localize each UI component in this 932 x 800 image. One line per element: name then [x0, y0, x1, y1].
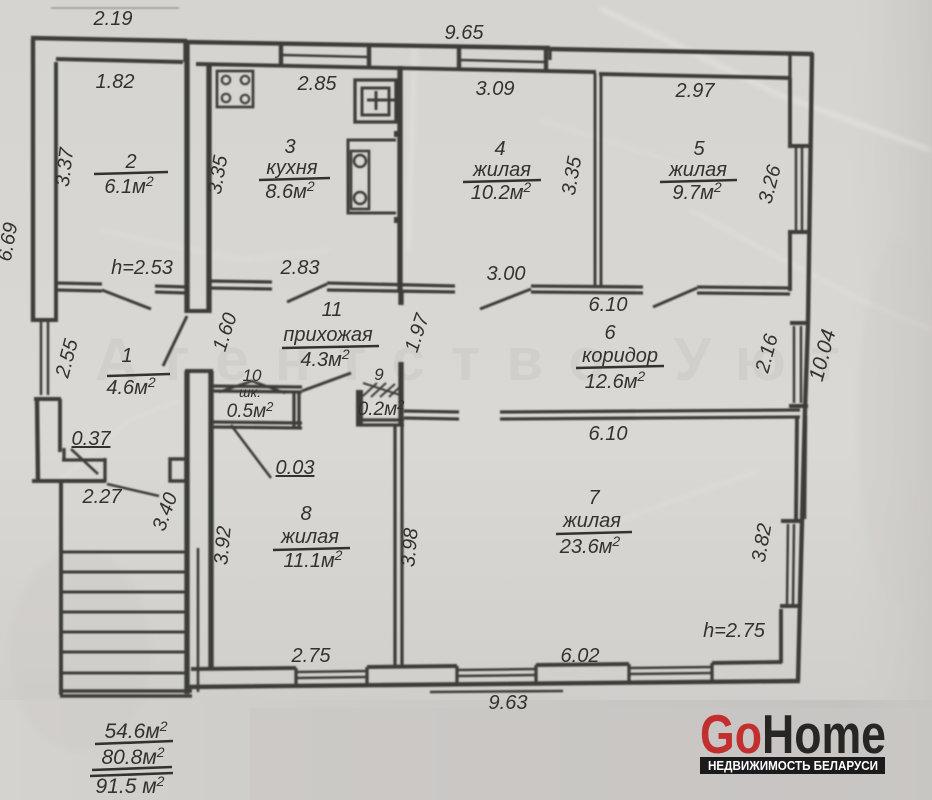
- svg-text:2.83: 2.83: [280, 257, 320, 279]
- svg-text:прихожая: прихожая: [283, 324, 373, 346]
- svg-text:2.19: 2.19: [93, 8, 133, 30]
- svg-text:2.27: 2.27: [82, 486, 123, 508]
- svg-text:6.10: 6.10: [589, 294, 628, 316]
- svg-text:10.2м2: 10.2м2: [471, 179, 532, 204]
- svg-text:GoHome: GoHome: [700, 703, 886, 765]
- svg-text:2.85: 2.85: [297, 73, 338, 95]
- svg-text:h=2.75: h=2.75: [703, 620, 766, 642]
- svg-text:54.6м2: 54.6м2: [104, 718, 167, 743]
- svg-text:кухня: кухня: [266, 157, 317, 179]
- svg-text:9.65: 9.65: [445, 22, 485, 44]
- svg-text:3.92: 3.92: [210, 525, 235, 566]
- svg-text:жилая: жилая: [280, 526, 339, 548]
- svg-text:2.97: 2.97: [675, 80, 716, 102]
- svg-text:коридор: коридор: [582, 345, 658, 367]
- svg-text:8: 8: [300, 503, 311, 525]
- svg-text:0.37: 0.37: [72, 428, 112, 450]
- svg-text:6.02: 6.02: [561, 645, 600, 667]
- svg-text:3.09: 3.09: [476, 78, 515, 100]
- svg-text:6: 6: [604, 322, 616, 344]
- svg-text:11: 11: [322, 299, 343, 321]
- svg-text:3.00: 3.00: [487, 263, 526, 285]
- svg-text:шк.: шк.: [239, 384, 261, 400]
- svg-text:1.82: 1.82: [96, 71, 135, 93]
- svg-text:2.75: 2.75: [291, 645, 332, 667]
- svg-text:6.10: 6.10: [589, 423, 628, 445]
- svg-text:91.5 м2: 91.5 м2: [96, 773, 165, 798]
- svg-text:0.03: 0.03: [276, 457, 315, 479]
- svg-text:80.8м2: 80.8м2: [101, 744, 164, 769]
- svg-text:НЕДВИЖИМОСТЬ БЕЛАРУСИ: НЕДВИЖИМОСТЬ БЕЛАРУСИ: [708, 759, 878, 773]
- svg-text:1: 1: [121, 345, 132, 367]
- svg-text:4: 4: [494, 138, 505, 160]
- svg-text:11.1м2: 11.1м2: [284, 547, 343, 572]
- svg-text:5: 5: [693, 138, 705, 160]
- svg-text:12.6м2: 12.6м2: [585, 368, 646, 393]
- svg-text:h=2.53: h=2.53: [111, 257, 173, 279]
- svg-text:9.63: 9.63: [489, 692, 528, 714]
- svg-text:23.6м2: 23.6м2: [559, 533, 621, 558]
- svg-text:10: 10: [243, 366, 262, 385]
- svg-text:2: 2: [124, 151, 136, 173]
- svg-text:7: 7: [588, 487, 600, 509]
- svg-text:жилая: жилая: [562, 510, 621, 532]
- svg-text:жилая: жилая: [668, 159, 727, 181]
- svg-text:9: 9: [374, 365, 384, 384]
- svg-text:3.98: 3.98: [397, 527, 422, 568]
- svg-text:жилая: жилая: [472, 159, 531, 181]
- svg-text:3: 3: [284, 136, 295, 158]
